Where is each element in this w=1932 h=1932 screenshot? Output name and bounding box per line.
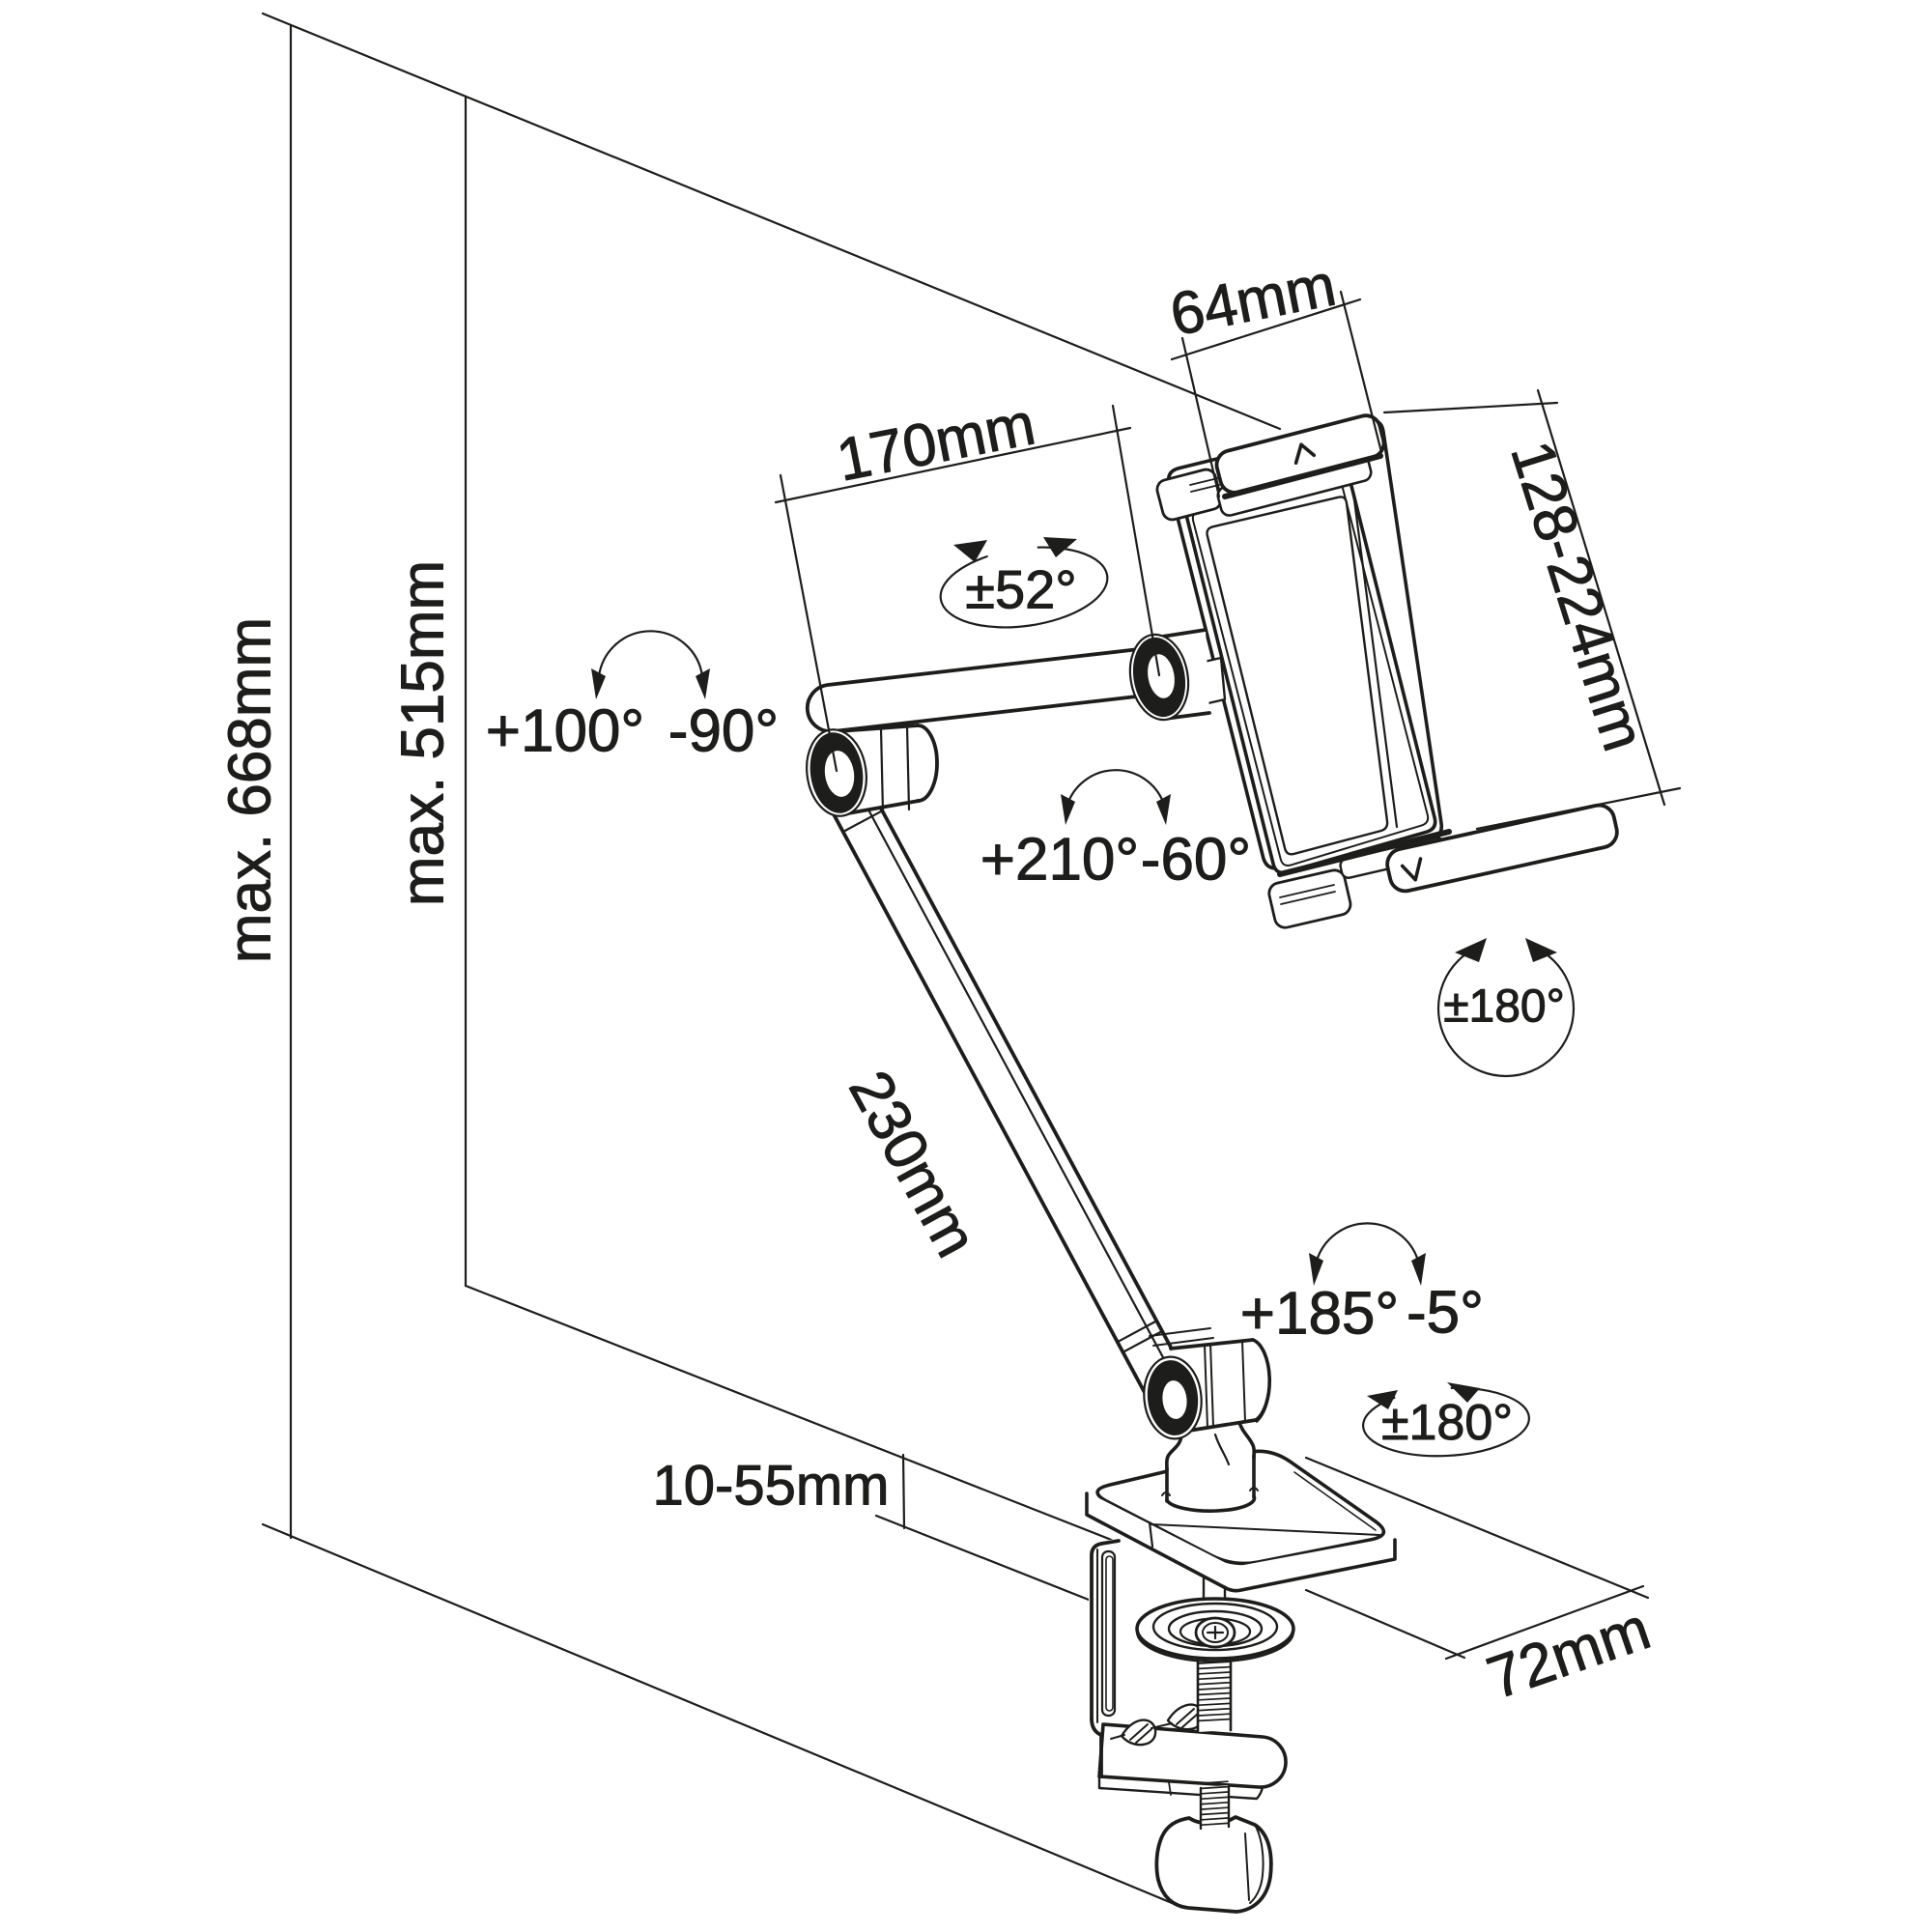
svg-text:-5°: -5° [1406,1280,1484,1347]
svg-text:±52°: ±52° [965,559,1076,620]
svg-text:max. 668mm: max. 668mm [217,617,284,963]
svg-text:+210°: +210° [980,827,1139,894]
svg-text:±180°: ±180° [1381,1395,1513,1451]
svg-text:-90°: -90° [668,698,779,765]
svg-text:-60°: -60° [1141,827,1251,894]
svg-text:+185°: +185° [1240,1281,1399,1348]
svg-text:max. 515mm: max. 515mm [390,560,457,906]
svg-text:+100°: +100° [486,698,644,765]
svg-text:±180°: ±180° [1443,981,1565,1033]
svg-text:10-55mm: 10-55mm [653,1455,890,1518]
